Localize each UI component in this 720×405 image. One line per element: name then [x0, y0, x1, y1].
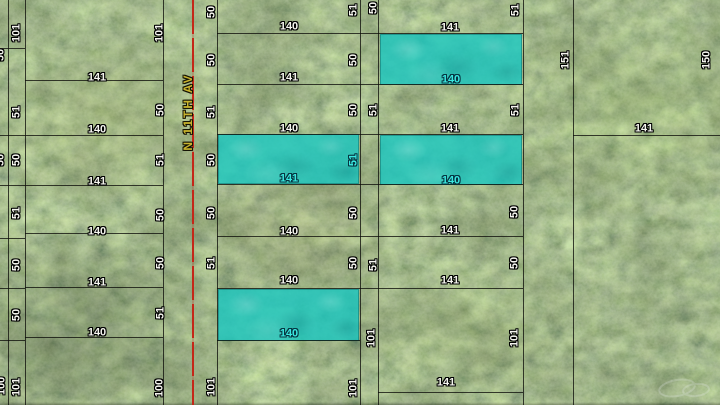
dimension-label: 51 — [511, 104, 522, 116]
dimension-label: 51 — [156, 154, 167, 166]
dimension-label: 101 — [349, 379, 360, 397]
dimension-label: 141 — [88, 73, 106, 84]
dimension-label: 50 — [0, 154, 7, 166]
dimension-label: 140 — [88, 328, 106, 339]
dimension-label: 51 — [349, 154, 360, 166]
dimension-label: 50 — [156, 209, 167, 221]
dimension-label: 50 — [12, 259, 23, 271]
dimension-label: 50 — [12, 309, 23, 321]
dimension-label: 140 — [442, 176, 460, 187]
dimension-label: 141 — [437, 378, 455, 389]
dimension-label: 101 — [207, 378, 218, 396]
dimension-label: 50 — [349, 257, 360, 269]
dimension-label: 50 — [349, 54, 360, 66]
dimension-label: 140 — [280, 329, 298, 340]
dimension-label: 141 — [280, 174, 298, 185]
dimension-label: 141 — [88, 177, 106, 188]
dimension-label: 101 — [12, 24, 23, 42]
dimension-label: 50 — [207, 54, 218, 66]
dimension-label: 51 — [369, 259, 380, 271]
street-name-label: N 11TH AV — [181, 73, 195, 150]
dimension-label: 51 — [369, 104, 380, 116]
dimension-label: 151 — [561, 51, 572, 69]
dimension-label: 51 — [207, 106, 218, 118]
dimension-label: 50 — [12, 154, 23, 166]
dimension-label: 141 — [280, 73, 298, 84]
dimension-label: 50 — [349, 104, 360, 116]
dimension-label: 100 — [155, 379, 166, 397]
dimension-label: 140 — [280, 227, 298, 238]
dimension-label: 100 — [0, 377, 8, 395]
dimension-label: 50 — [0, 49, 7, 61]
dimension-label: 150 — [702, 51, 713, 69]
dimension-label: 50 — [510, 257, 521, 269]
dimension-labels-layer: 5050100101515051505010110150515050511001… — [0, 0, 720, 405]
dimension-label: 51 — [12, 207, 23, 219]
dimension-label: 140 — [442, 75, 460, 86]
dimension-label: 101 — [510, 329, 521, 347]
dimension-label: 141 — [441, 23, 459, 34]
map-viewport[interactable]: 5050100101515051505010110150515050511001… — [0, 0, 720, 405]
dimension-label: 101 — [12, 378, 23, 396]
dimension-label: 140 — [280, 276, 298, 287]
dimension-label: 50 — [156, 104, 167, 116]
dimension-label: 51 — [207, 257, 218, 269]
dimension-label: 140 — [88, 227, 106, 238]
dimension-label: 50 — [349, 207, 360, 219]
dimension-label: 50 — [207, 6, 218, 18]
dimension-label: 50 — [510, 206, 521, 218]
dimension-label: 51 — [156, 307, 167, 319]
dimension-label: 141 — [441, 276, 459, 287]
dimension-label: 141 — [635, 124, 653, 135]
dimension-label: 141 — [441, 226, 459, 237]
dimension-label: 51 — [349, 4, 360, 16]
dimension-label: 141 — [441, 124, 459, 135]
dimension-label: 140 — [88, 125, 106, 136]
dimension-label: 51 — [12, 106, 23, 118]
dimension-label: 101 — [155, 24, 166, 42]
dimension-label: 50 — [207, 207, 218, 219]
dimension-label: 140 — [280, 22, 298, 33]
dimension-label: 141 — [88, 278, 106, 289]
dimension-label: 140 — [280, 124, 298, 135]
dimension-label: 101 — [367, 329, 378, 347]
dimension-label: 50 — [207, 154, 218, 166]
dimension-label: 50 — [156, 257, 167, 269]
dimension-label: 50 — [369, 2, 380, 14]
dimension-label: 51 — [511, 4, 522, 16]
